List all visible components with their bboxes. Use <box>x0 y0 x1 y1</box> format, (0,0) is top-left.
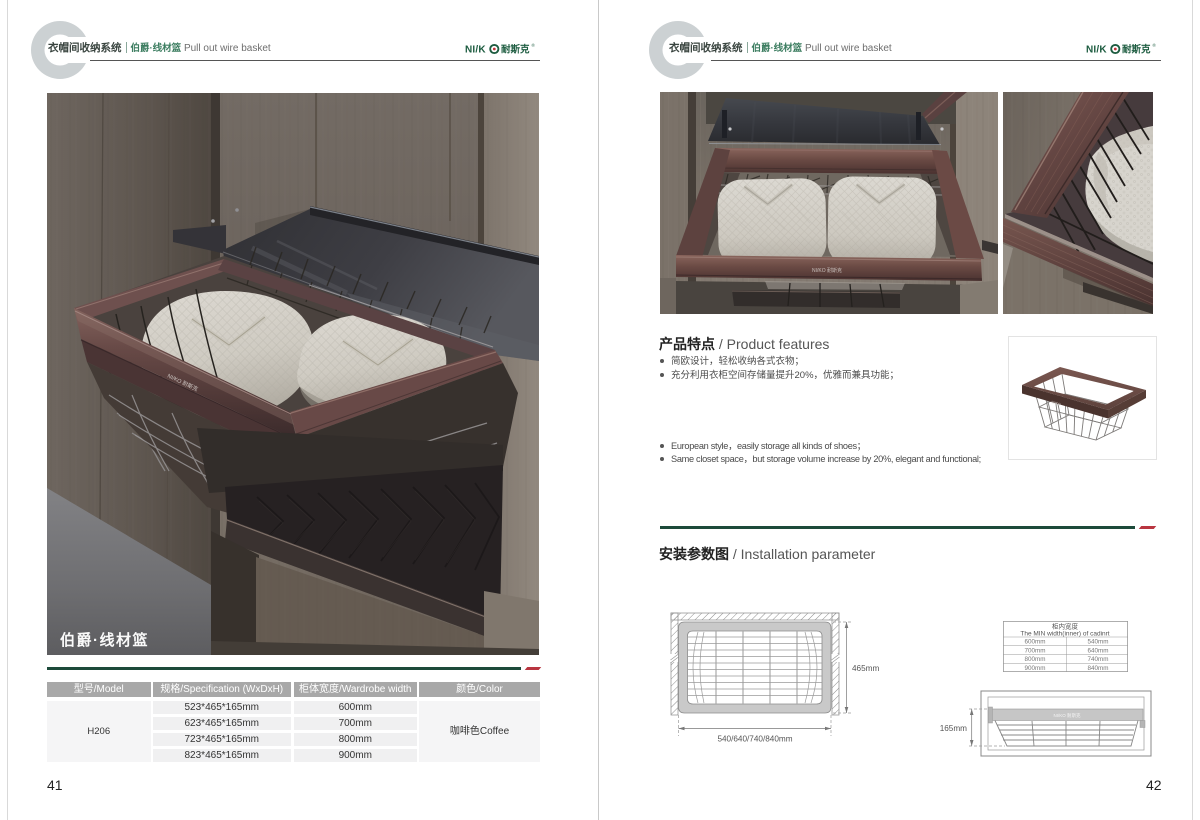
svg-text:165mm: 165mm <box>940 724 967 733</box>
svg-text:NI/K: NI/K <box>465 45 486 56</box>
svg-text:840mm: 840mm <box>1088 665 1109 672</box>
svg-text:The MIN width(inner) of cadinr: The MIN width(inner) of cadinrt <box>1020 630 1109 637</box>
svg-text:伯爵·线材篮: 伯爵·线材篮 <box>60 631 149 649</box>
svg-text:耐斯克: 耐斯克 <box>1122 44 1151 56</box>
svg-text:640mm: 640mm <box>1088 647 1109 654</box>
svg-text:800mm: 800mm <box>1025 656 1046 663</box>
svg-text:®: ® <box>532 42 536 48</box>
svg-text:NI/K: NI/K <box>1086 45 1107 56</box>
svg-text:600mm: 600mm <box>1025 639 1046 646</box>
svg-text:900mm: 900mm <box>1025 665 1046 672</box>
svg-text:700mm: 700mm <box>1025 647 1046 654</box>
svg-text:柜内宽度: 柜内宽度 <box>1052 622 1079 631</box>
svg-text:NI/KO 耐斯克: NI/KO 耐斯克 <box>812 267 842 274</box>
svg-text:540/640/740/840mm: 540/640/740/840mm <box>717 735 792 744</box>
svg-text:540mm: 540mm <box>1088 639 1109 646</box>
svg-text:®: ® <box>1153 42 1157 48</box>
svg-text:耐斯克: 耐斯克 <box>501 44 530 56</box>
svg-text:NI/KO 耐斯克: NI/KO 耐斯克 <box>1053 712 1081 719</box>
svg-text:740mm: 740mm <box>1088 656 1109 663</box>
svg-text:465mm: 465mm <box>852 664 879 673</box>
